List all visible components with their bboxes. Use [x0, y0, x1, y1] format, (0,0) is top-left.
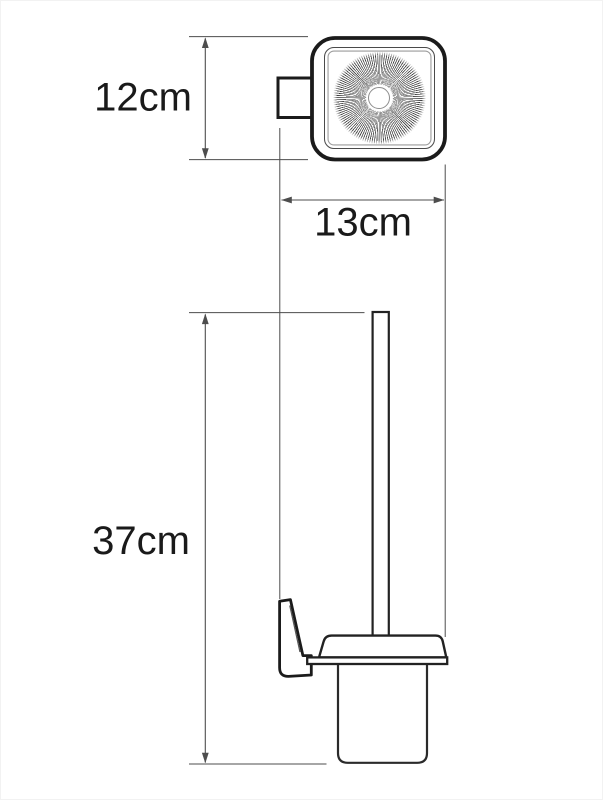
label-total-height: 37cm: [92, 519, 190, 563]
dim12-arrow-up: [202, 37, 209, 48]
rod-hole: [368, 87, 390, 109]
label-width: 13cm: [314, 201, 412, 245]
dim12-arrow-down: [202, 148, 209, 159]
glass-cup: [338, 660, 427, 763]
technical-drawing: 12cm 13cm 37cm: [0, 0, 603, 800]
dim37-arrow-down: [202, 753, 209, 764]
brush-rod: [373, 312, 389, 642]
drawing-svg: 12cm 13cm 37cm: [1, 1, 603, 800]
side-view: [280, 312, 448, 763]
holder-lid: [319, 636, 446, 658]
dim13-arrow-right: [434, 197, 445, 204]
wall-tab-top-view: [278, 78, 315, 118]
dim13-arrow-left: [281, 197, 292, 204]
dim37-arrow-up: [202, 314, 209, 325]
label-top-height: 12cm: [94, 76, 192, 120]
mounting-plate: [307, 657, 447, 664]
